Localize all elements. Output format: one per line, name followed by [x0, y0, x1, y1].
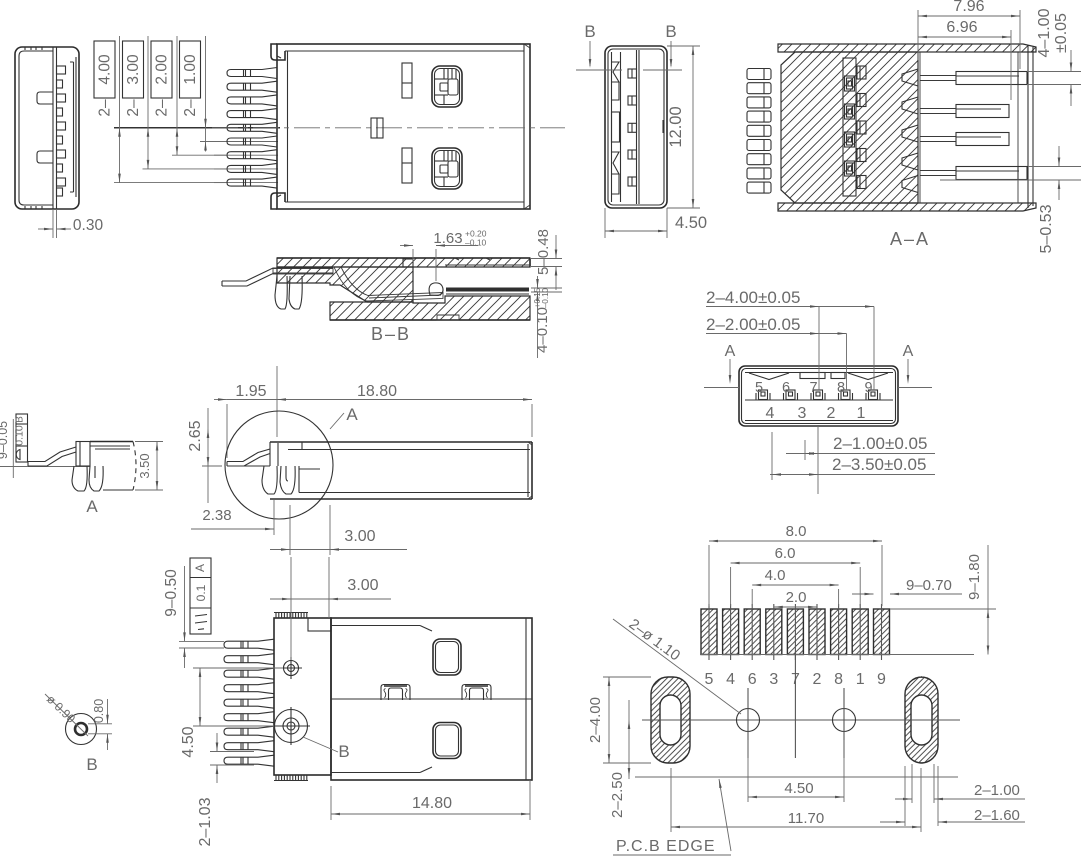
svg-text:4: 4 — [766, 405, 775, 422]
svg-text:2–: 2– — [154, 99, 171, 117]
svg-text:2–1.03: 2–1.03 — [197, 797, 214, 846]
svg-text:6.96: 6.96 — [946, 19, 977, 36]
svg-text:4.50: 4.50 — [180, 726, 197, 757]
svg-text:0.30: 0.30 — [73, 217, 104, 234]
svg-text:2.0: 2.0 — [786, 589, 807, 606]
svg-text:B: B — [584, 22, 595, 41]
svg-text:1: 1 — [857, 405, 866, 422]
svg-text:A: A — [86, 497, 98, 516]
svg-text:4.00: 4.00 — [97, 54, 114, 85]
svg-text:1.95: 1.95 — [235, 383, 266, 400]
svg-text:–0.10: –0.10 — [465, 238, 487, 248]
svg-text:0.10: 0.10 — [14, 425, 26, 446]
svg-text:A: A — [346, 405, 358, 424]
svg-text:6: 6 — [782, 380, 790, 396]
svg-text:8: 8 — [834, 671, 843, 688]
svg-text:1.00: 1.00 — [182, 54, 199, 85]
svg-text:4.50: 4.50 — [784, 780, 813, 797]
svg-text:2–: 2– — [182, 99, 199, 117]
svg-text:B: B — [15, 416, 26, 423]
svg-text:B: B — [665, 22, 676, 41]
svg-text:11.70: 11.70 — [788, 810, 824, 827]
svg-text:9–0.50: 9–0.50 — [163, 569, 180, 617]
svg-text:2–ø 1.10: 2–ø 1.10 — [626, 616, 684, 665]
svg-text:5–0.48: 5–0.48 — [535, 229, 552, 275]
svg-text:8: 8 — [837, 380, 845, 396]
svg-text:2–3.50±0.05: 2–3.50±0.05 — [832, 455, 926, 474]
svg-text:B–B: B–B — [371, 324, 411, 344]
svg-text:9: 9 — [864, 380, 872, 396]
svg-text:±0.05: ±0.05 — [1053, 13, 1070, 53]
svg-text:3.00: 3.00 — [125, 54, 142, 85]
svg-text:B: B — [338, 742, 349, 761]
svg-text:5–0.53: 5–0.53 — [1038, 204, 1055, 253]
svg-text:3.00: 3.00 — [347, 577, 378, 594]
svg-text:2.38: 2.38 — [202, 507, 231, 524]
svg-text:–0.10: –0.10 — [541, 287, 550, 308]
svg-text:P.C.B EDGE: P.C.B EDGE — [616, 838, 716, 855]
svg-text:4.0: 4.0 — [765, 567, 786, 584]
svg-text:2–1.00±0.05: 2–1.00±0.05 — [833, 434, 927, 453]
svg-text:5: 5 — [755, 380, 763, 396]
svg-text:5: 5 — [705, 671, 714, 688]
svg-text:4: 4 — [726, 671, 735, 688]
svg-text:6.0: 6.0 — [775, 545, 796, 562]
svg-text:2: 2 — [813, 671, 822, 688]
svg-text:2.65: 2.65 — [187, 420, 204, 451]
svg-text:14.80: 14.80 — [412, 795, 452, 812]
svg-text:6: 6 — [748, 671, 757, 688]
svg-text:7.96: 7.96 — [953, 0, 984, 15]
svg-text:9–0.05: 9–0.05 — [0, 421, 10, 459]
svg-text:2.00: 2.00 — [154, 54, 171, 85]
svg-text:9–1.80: 9–1.80 — [966, 554, 983, 600]
svg-text:A–A: A–A — [890, 229, 930, 249]
svg-text:3.50: 3.50 — [137, 453, 152, 478]
svg-text:B: B — [86, 755, 97, 774]
svg-text:2–4.00: 2–4.00 — [587, 697, 604, 743]
svg-text:12.00: 12.00 — [667, 106, 685, 147]
svg-text:3: 3 — [769, 671, 778, 688]
svg-text:3: 3 — [798, 405, 807, 422]
svg-text:8.0: 8.0 — [786, 523, 807, 540]
svg-text:2–: 2– — [97, 99, 114, 117]
svg-text:1.63: 1.63 — [433, 230, 462, 247]
svg-text:4–1.00: 4–1.00 — [1036, 8, 1053, 57]
svg-text:2–: 2– — [125, 99, 142, 117]
svg-text:9: 9 — [877, 671, 886, 688]
svg-text:4–0.10: 4–0.10 — [534, 307, 551, 353]
svg-text:2–4.00±0.05: 2–4.00±0.05 — [706, 288, 800, 307]
svg-text:3.00: 3.00 — [344, 528, 375, 545]
svg-text:4.50: 4.50 — [675, 214, 707, 232]
svg-text:2–2.50: 2–2.50 — [609, 772, 626, 818]
svg-text:9–0.70: 9–0.70 — [906, 577, 952, 594]
svg-text:2: 2 — [827, 405, 836, 422]
svg-text:7: 7 — [809, 380, 817, 396]
svg-text:A: A — [903, 343, 914, 360]
svg-text:2–2.00±0.05: 2–2.00±0.05 — [706, 315, 800, 334]
svg-text:1: 1 — [856, 671, 865, 688]
svg-text:0.1: 0.1 — [194, 584, 208, 601]
svg-text:A: A — [725, 343, 736, 360]
svg-text:18.80: 18.80 — [357, 383, 397, 400]
svg-text:0.80: 0.80 — [92, 699, 106, 723]
svg-text:2–1.00: 2–1.00 — [974, 782, 1020, 799]
svg-text:A: A — [193, 564, 207, 572]
svg-text:2–1.60: 2–1.60 — [974, 807, 1020, 824]
